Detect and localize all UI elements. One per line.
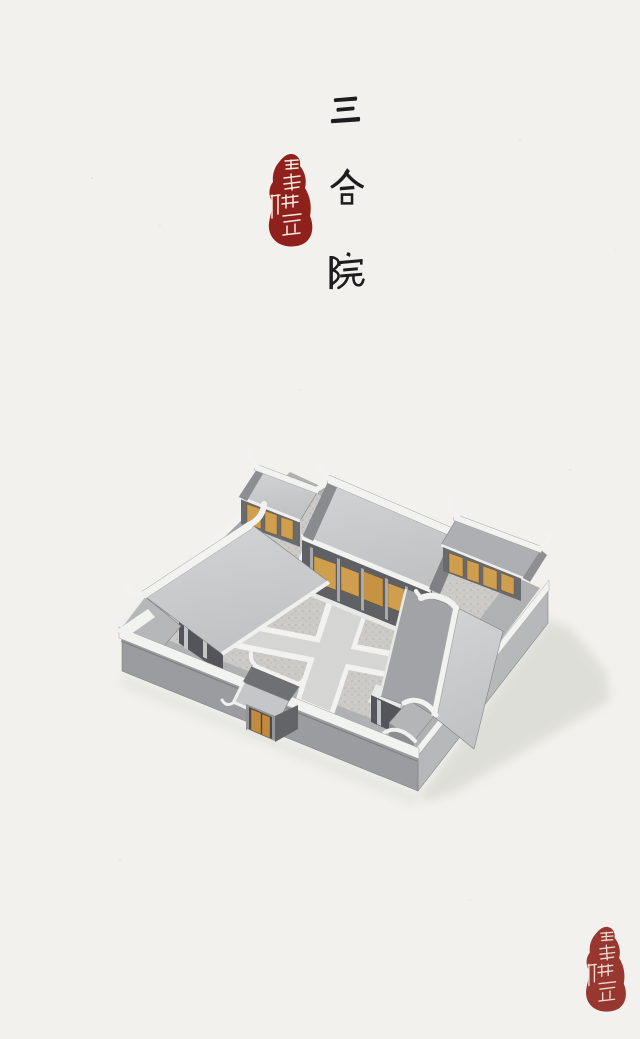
courtyard-scene (0, 0, 640, 1034)
gate-door-right (262, 714, 270, 738)
west-ear-window (265, 511, 277, 535)
gate-door-left (251, 709, 261, 734)
courtyard-illustration (0, 0, 640, 1039)
poster-page: { "title": { "text": "三合院", "characters"… (0, 0, 640, 1034)
watermark: 星球研究所 (581, 925, 628, 1018)
east-ear-window (467, 560, 479, 583)
west-ear-window (281, 517, 293, 540)
watermark-graphic (581, 925, 628, 1013)
